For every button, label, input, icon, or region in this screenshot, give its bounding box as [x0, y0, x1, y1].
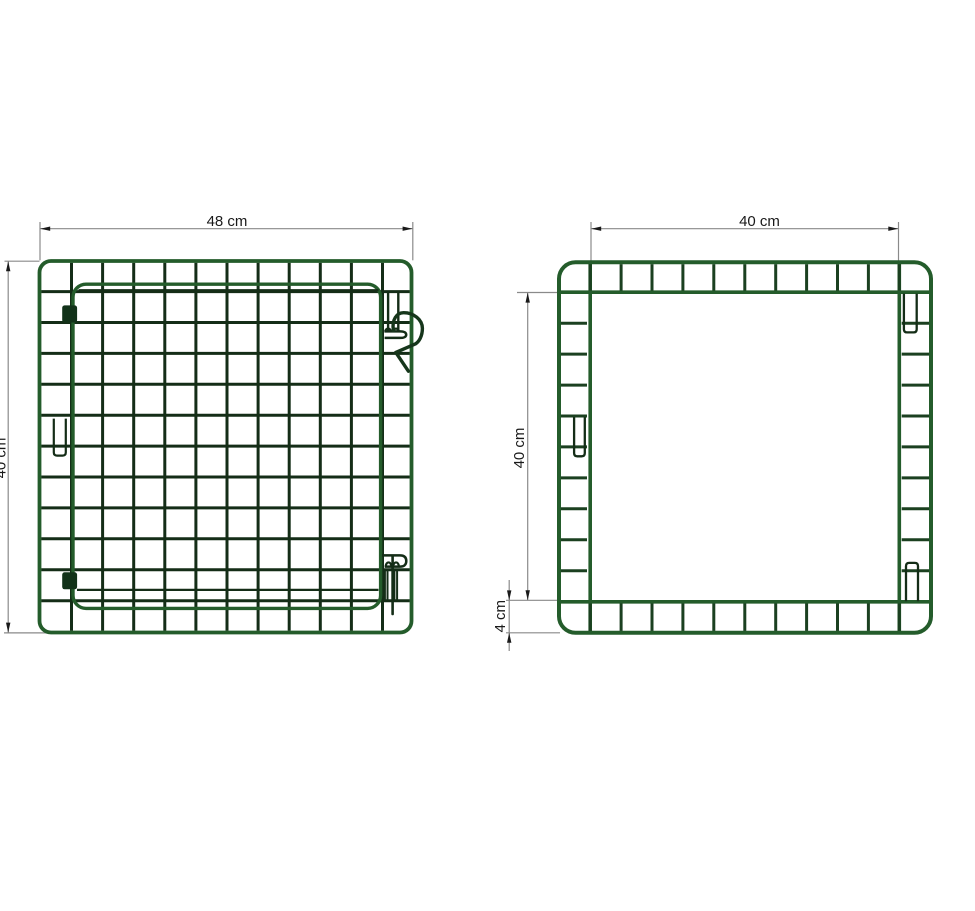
svg-text:40 cm: 40 cm	[0, 438, 10, 479]
svg-text:48 cm: 48 cm	[207, 213, 248, 230]
svg-text:40 cm: 40 cm	[739, 213, 780, 230]
svg-text:4 cm: 4 cm	[492, 600, 509, 633]
svg-text:40 cm: 40 cm	[511, 428, 528, 469]
